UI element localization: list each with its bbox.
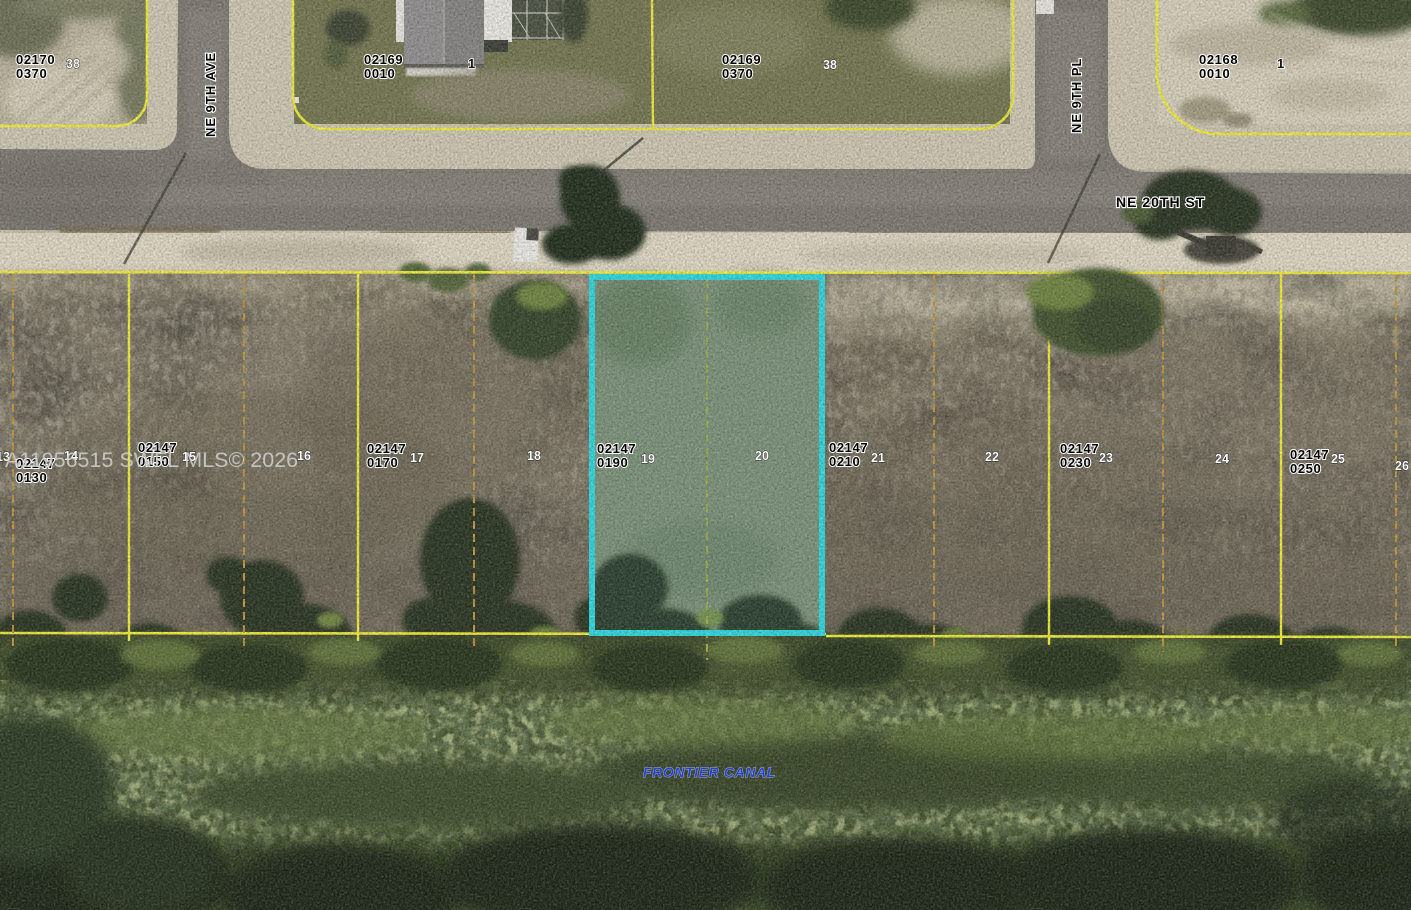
svg-text:38: 38 (823, 58, 837, 72)
svg-text:18: 18 (527, 449, 541, 463)
svg-text:02168: 02168 (1199, 52, 1238, 67)
svg-text:FRONTIER CANAL: FRONTIER CANAL (643, 764, 776, 780)
svg-text:19: 19 (641, 452, 655, 466)
svg-text:23: 23 (1099, 451, 1113, 465)
svg-text:16: 16 (297, 449, 311, 463)
svg-text:0190: 0190 (597, 455, 628, 470)
svg-text:20: 20 (755, 449, 769, 463)
svg-text:02170: 02170 (16, 52, 55, 67)
svg-text:0210: 0210 (829, 454, 860, 469)
svg-text:0010: 0010 (364, 66, 395, 81)
svg-text:NE 9TH AVE: NE 9TH AVE (203, 52, 218, 137)
svg-text:NE 20TH ST: NE 20TH ST (1116, 194, 1205, 210)
svg-text:0170: 0170 (367, 455, 398, 470)
svg-text:24: 24 (1215, 452, 1229, 466)
svg-text:0230: 0230 (1060, 455, 1091, 470)
svg-text:21: 21 (871, 451, 885, 465)
svg-text:02147: 02147 (1060, 441, 1099, 456)
svg-text:25: 25 (1331, 452, 1345, 466)
svg-text:02147: 02147 (367, 441, 406, 456)
svg-text:A11956515 SWFL MLS© 2026: A11956515 SWFL MLS© 2026 (5, 448, 298, 472)
svg-text:02147: 02147 (829, 440, 868, 455)
svg-text:0010: 0010 (1199, 66, 1230, 81)
svg-text:1: 1 (468, 56, 475, 71)
svg-text:0370: 0370 (722, 66, 753, 81)
svg-text:02147: 02147 (1290, 447, 1329, 462)
svg-text:38: 38 (66, 57, 80, 71)
svg-text:22: 22 (985, 450, 999, 464)
svg-text:02147: 02147 (597, 441, 636, 456)
svg-text:0250: 0250 (1290, 461, 1321, 476)
svg-text:0370: 0370 (16, 66, 47, 81)
svg-text:1: 1 (1277, 56, 1284, 71)
svg-text:26: 26 (1395, 459, 1409, 473)
svg-text:NE 9TH PL: NE 9TH PL (1069, 58, 1084, 133)
svg-text:02169: 02169 (364, 52, 403, 67)
svg-text:02169: 02169 (722, 52, 761, 67)
svg-text:17: 17 (410, 451, 424, 465)
svg-text:0130: 0130 (16, 470, 47, 485)
